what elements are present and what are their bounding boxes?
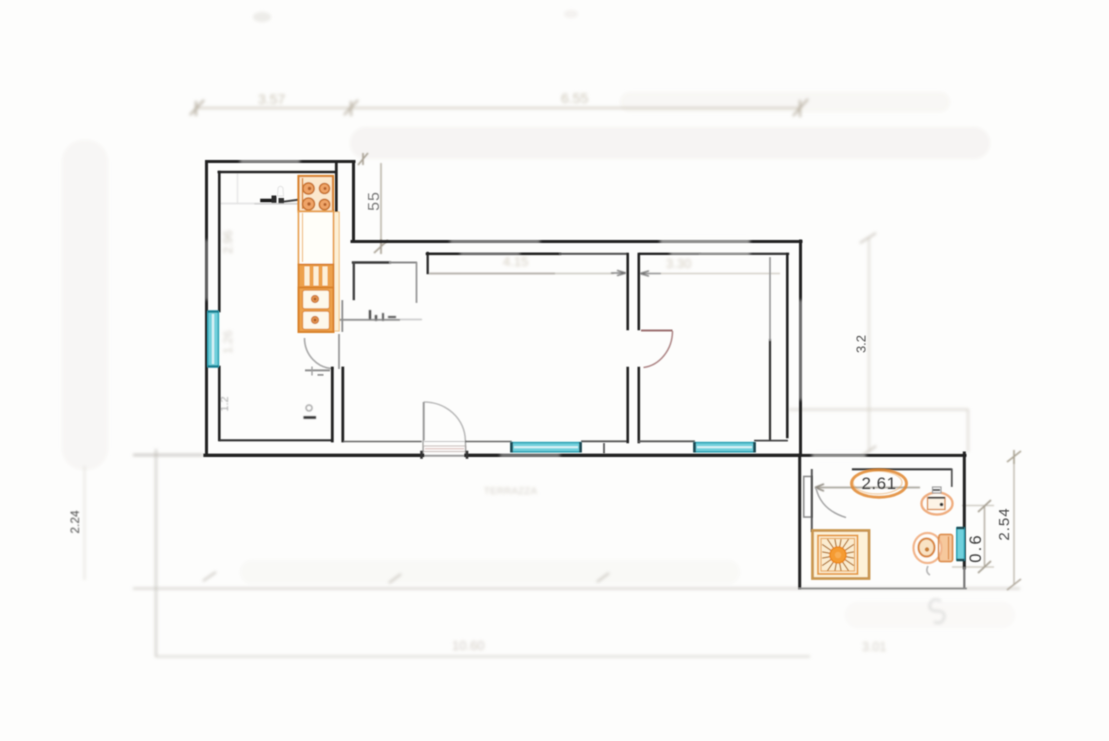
svg-text:55: 55: [366, 191, 383, 211]
svg-text:1.26: 1.26: [221, 330, 235, 354]
svg-text:2.61: 2.61: [861, 474, 896, 493]
svg-text:1.2: 1.2: [219, 396, 231, 411]
svg-text:2.24: 2.24: [68, 510, 82, 534]
svg-text:2.54: 2.54: [996, 507, 1013, 540]
svg-text:4.15: 4.15: [503, 254, 528, 269]
svg-text:0.6: 0.6: [967, 533, 985, 563]
svg-text:2.96: 2.96: [221, 230, 235, 254]
svg-text:6.55: 6.55: [561, 90, 588, 106]
svg-text:3.2: 3.2: [853, 335, 868, 353]
svg-text:TERRAZZA: TERRAZZA: [484, 486, 538, 497]
svg-text:3.01: 3.01: [862, 640, 886, 654]
svg-text:3.30: 3.30: [666, 256, 691, 271]
svg-text:10.60: 10.60: [452, 638, 485, 653]
svg-text:3.57: 3.57: [258, 91, 285, 107]
